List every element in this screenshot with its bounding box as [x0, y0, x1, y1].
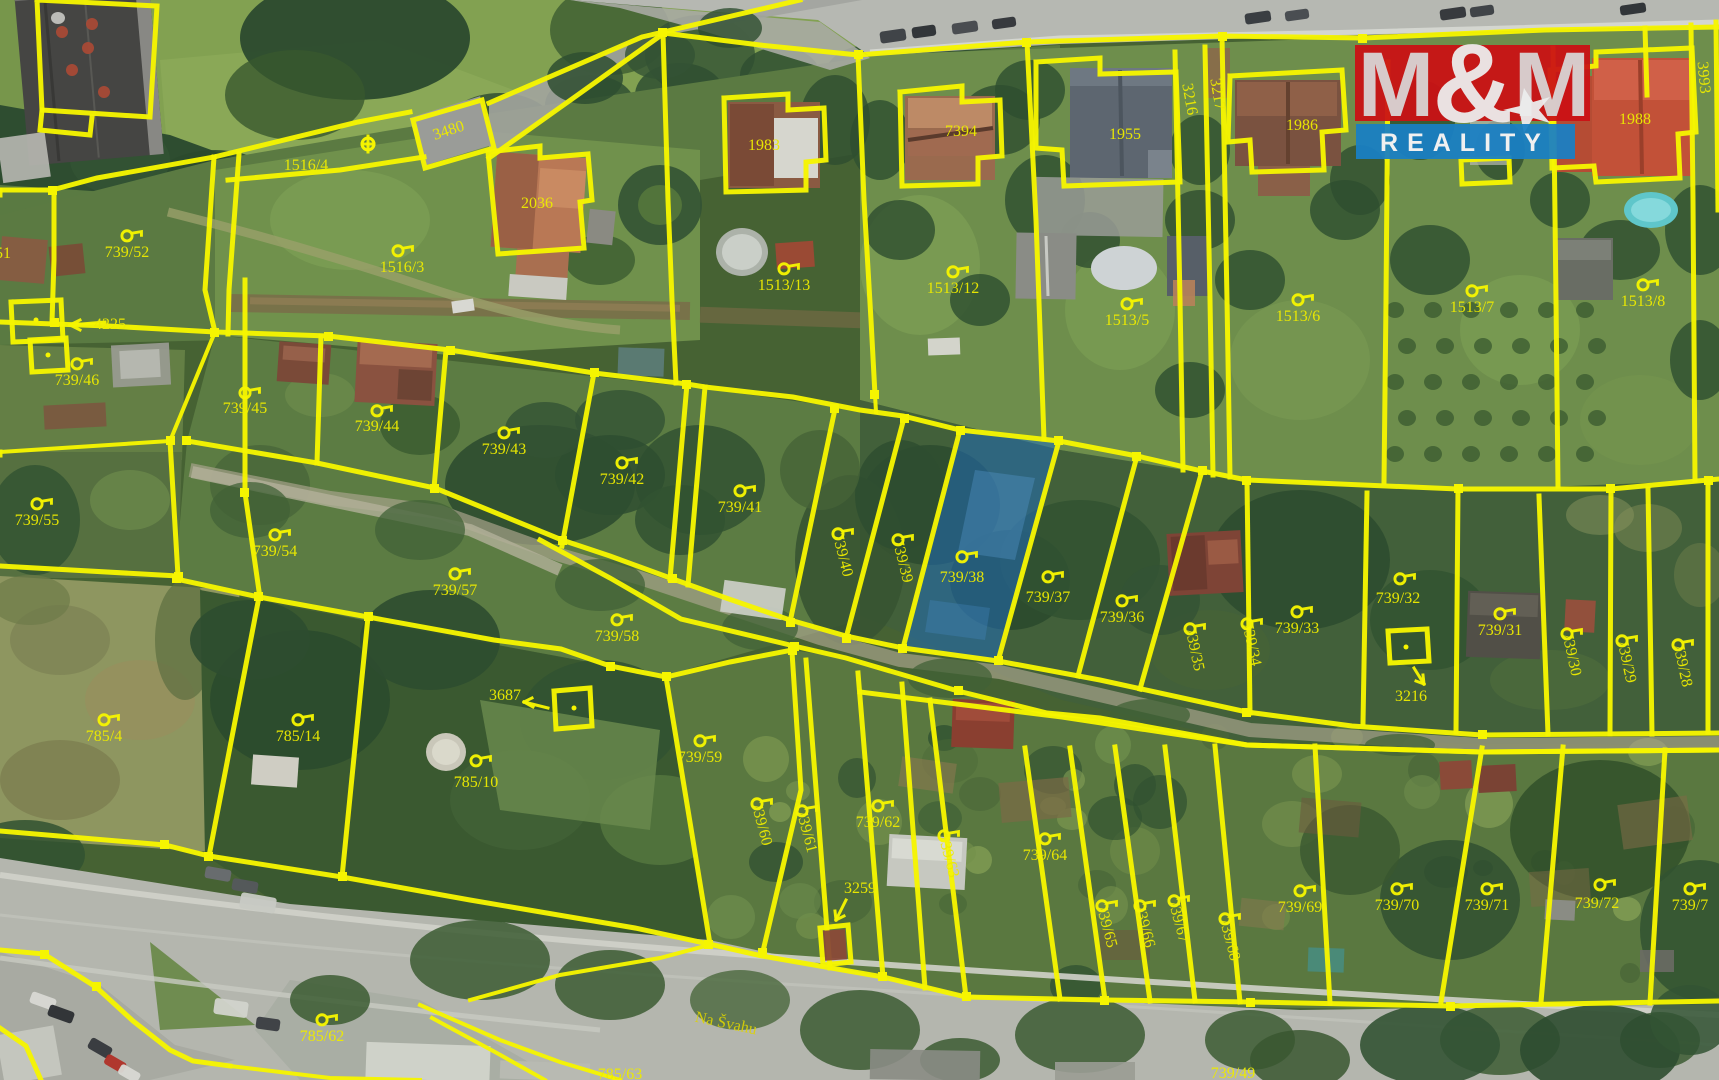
svg-text:51: 51: [0, 245, 11, 262]
svg-text:739/52: 739/52: [105, 244, 149, 261]
svg-text:1986: 1986: [1286, 117, 1318, 134]
svg-text:739/41: 739/41: [718, 499, 762, 516]
svg-text:3687: 3687: [489, 687, 521, 704]
svg-text:739/45: 739/45: [223, 400, 267, 417]
svg-text:1955: 1955: [1109, 126, 1141, 143]
svg-text:739/42: 739/42: [600, 471, 644, 488]
svg-text:1513/8: 1513/8: [1621, 293, 1665, 310]
svg-text:739/44: 739/44: [355, 418, 399, 435]
svg-text:739/46: 739/46: [55, 372, 99, 389]
svg-text:739/54: 739/54: [253, 543, 297, 560]
svg-text:739/31: 739/31: [1478, 622, 1522, 639]
svg-text:785/62: 785/62: [300, 1028, 344, 1045]
svg-text:739/43: 739/43: [482, 441, 526, 458]
svg-text:2036: 2036: [521, 195, 553, 212]
svg-text:739/62: 739/62: [856, 814, 900, 831]
svg-text:1516/4: 1516/4: [284, 157, 328, 174]
svg-text:739/57: 739/57: [433, 582, 477, 599]
svg-text:739/64: 739/64: [1023, 847, 1067, 864]
svg-text:7394: 7394: [945, 123, 977, 140]
svg-text:M: M: [1358, 34, 1435, 136]
svg-text:739/55: 739/55: [15, 512, 59, 529]
svg-text:REALITY: REALITY: [1380, 129, 1550, 157]
svg-text:1513/6: 1513/6: [1276, 308, 1320, 325]
svg-text:739/33: 739/33: [1275, 620, 1319, 637]
svg-text:1513/13: 1513/13: [758, 277, 810, 294]
svg-text:785/4: 785/4: [86, 728, 122, 745]
svg-text:739/71: 739/71: [1465, 897, 1509, 914]
svg-text:1513/7: 1513/7: [1450, 299, 1494, 316]
svg-text:785/63: 785/63: [598, 1066, 642, 1080]
svg-text:739/69: 739/69: [1278, 899, 1322, 916]
svg-text:739/59: 739/59: [678, 749, 722, 766]
svg-text:739/49: 739/49: [1211, 1065, 1255, 1080]
svg-text:1983: 1983: [748, 137, 780, 154]
svg-text:1516/3: 1516/3: [380, 259, 424, 276]
svg-text:739/32: 739/32: [1376, 590, 1420, 607]
svg-text:739/37: 739/37: [1026, 589, 1070, 606]
svg-text:1988: 1988: [1619, 111, 1651, 128]
svg-text:739/7: 739/7: [1672, 897, 1708, 914]
svg-text:739/36: 739/36: [1100, 609, 1144, 626]
svg-text:739/72: 739/72: [1575, 895, 1619, 912]
svg-text:3216: 3216: [1395, 688, 1427, 705]
svg-text:1513/12: 1513/12: [927, 280, 979, 297]
svg-text:739/58: 739/58: [595, 628, 639, 645]
svg-text:3993: 3993: [1694, 61, 1714, 94]
svg-text:785/14: 785/14: [276, 728, 320, 745]
svg-text:785/10: 785/10: [454, 774, 498, 791]
svg-text:739/38: 739/38: [940, 569, 984, 586]
svg-text:3259: 3259: [844, 880, 876, 897]
svg-text:4225: 4225: [94, 316, 126, 333]
svg-text:739/70: 739/70: [1375, 897, 1419, 914]
svg-text:1513/5: 1513/5: [1105, 312, 1149, 329]
